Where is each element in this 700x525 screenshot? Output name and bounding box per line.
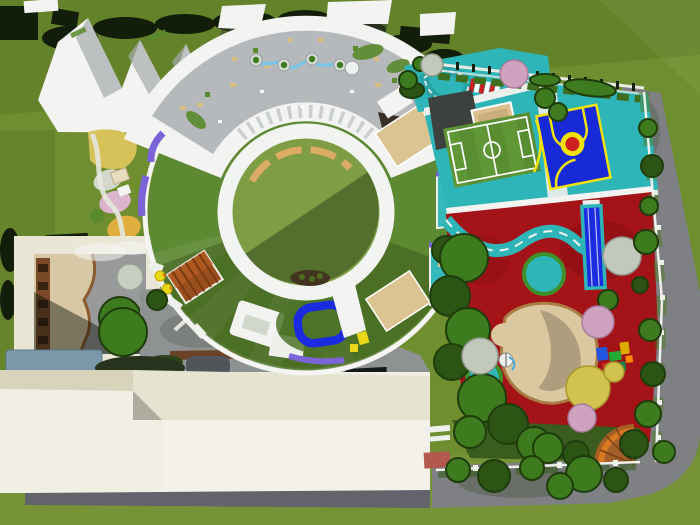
aerial-rendering <box>0 0 700 525</box>
blue-canopy <box>6 350 102 372</box>
cherry-tree <box>500 60 528 88</box>
site-plan-canvas <box>0 0 700 525</box>
teal-play-circle <box>524 254 564 294</box>
building-base-strip <box>25 490 430 508</box>
lap-pool <box>582 200 606 289</box>
silver-tree <box>462 338 498 374</box>
service-building <box>0 356 450 508</box>
basketball-court <box>536 105 610 189</box>
